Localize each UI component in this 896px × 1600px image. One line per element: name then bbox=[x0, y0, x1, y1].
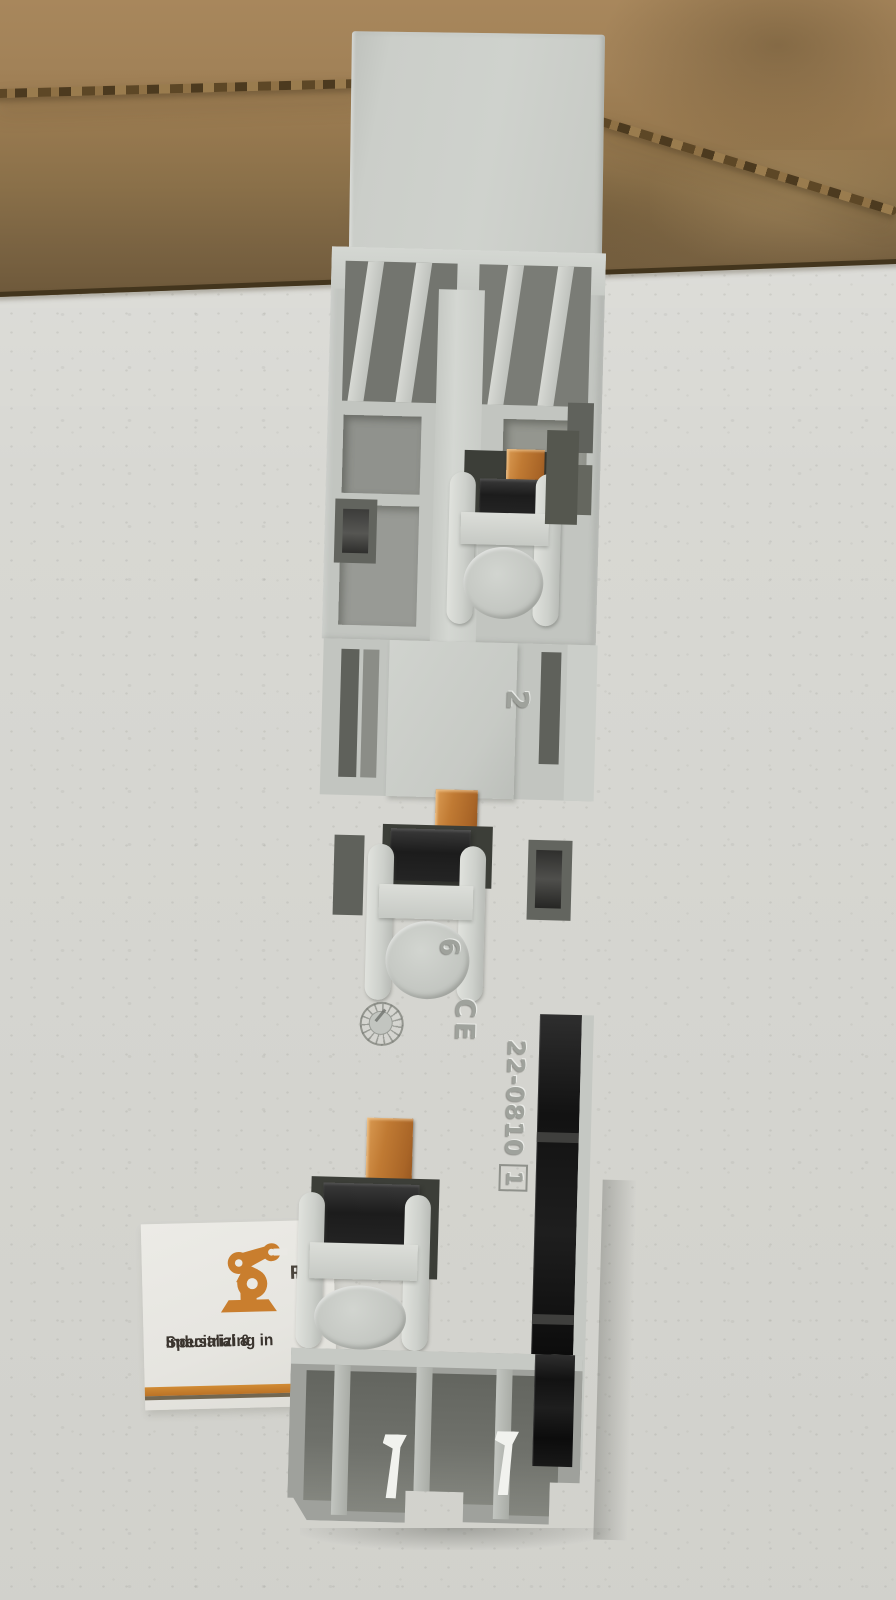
hook-rib bbox=[395, 263, 432, 403]
terminal-2 bbox=[358, 787, 506, 1003]
terminal-2-housing-bridge bbox=[378, 884, 473, 920]
part-number-group: 22-0810 1 bbox=[497, 1039, 531, 1240]
terminal-1-housing-bridge bbox=[460, 512, 549, 546]
box-smudge bbox=[600, 0, 896, 150]
terminal-2-wire-clamp bbox=[389, 828, 470, 882]
mold-cavity-number: 1 bbox=[498, 1164, 528, 1192]
box-tear-edge-left bbox=[0, 79, 364, 98]
mid-slot bbox=[338, 649, 359, 777]
side-slot-right bbox=[545, 430, 579, 525]
right-rail bbox=[564, 645, 598, 802]
black-bus-strip-bottom bbox=[532, 1354, 575, 1467]
ce-mark: CE bbox=[448, 998, 480, 1045]
mid-section bbox=[320, 638, 596, 801]
bottom-chamber bbox=[429, 1373, 496, 1505]
strip-notch bbox=[537, 1132, 579, 1143]
mold-date-wheel bbox=[359, 1001, 404, 1046]
terminal-3-housing-bridge bbox=[309, 1242, 418, 1281]
metal-clip-right bbox=[535, 850, 563, 909]
tagline-line-2: Industrial & bbox=[165, 1332, 251, 1353]
bottom-chamber bbox=[303, 1370, 334, 1501]
hook-rib bbox=[347, 261, 384, 401]
din-terminal-module: 2 6 CE 22-0810 1 bbox=[286, 246, 622, 1538]
part-number: 22-0810 bbox=[500, 1039, 531, 1157]
housing-pocket bbox=[342, 415, 422, 495]
robot-arm-icon bbox=[207, 1241, 293, 1319]
molded-number-6: 6 bbox=[434, 937, 464, 956]
mid-slot bbox=[360, 649, 379, 777]
strip-notch bbox=[532, 1314, 574, 1325]
hook-rib bbox=[537, 266, 574, 406]
bottom-section bbox=[286, 1348, 583, 1536]
metal-clip-left bbox=[342, 509, 369, 554]
terminal-3 bbox=[291, 1116, 447, 1352]
hook-pocket-right bbox=[476, 264, 592, 407]
hook-rib bbox=[487, 265, 524, 405]
box-highlight bbox=[650, 150, 896, 270]
module-mounting-tab bbox=[349, 31, 605, 261]
bottom-chamber bbox=[347, 1371, 417, 1513]
mid-slot bbox=[539, 652, 562, 764]
terminal-3-boss bbox=[313, 1284, 407, 1350]
side-slot-left bbox=[333, 835, 365, 916]
product-photo-scene: F IN Specializing in Industrial & bbox=[0, 0, 896, 1600]
mid-panel bbox=[386, 640, 518, 799]
molded-number-2: 2 bbox=[499, 689, 535, 711]
